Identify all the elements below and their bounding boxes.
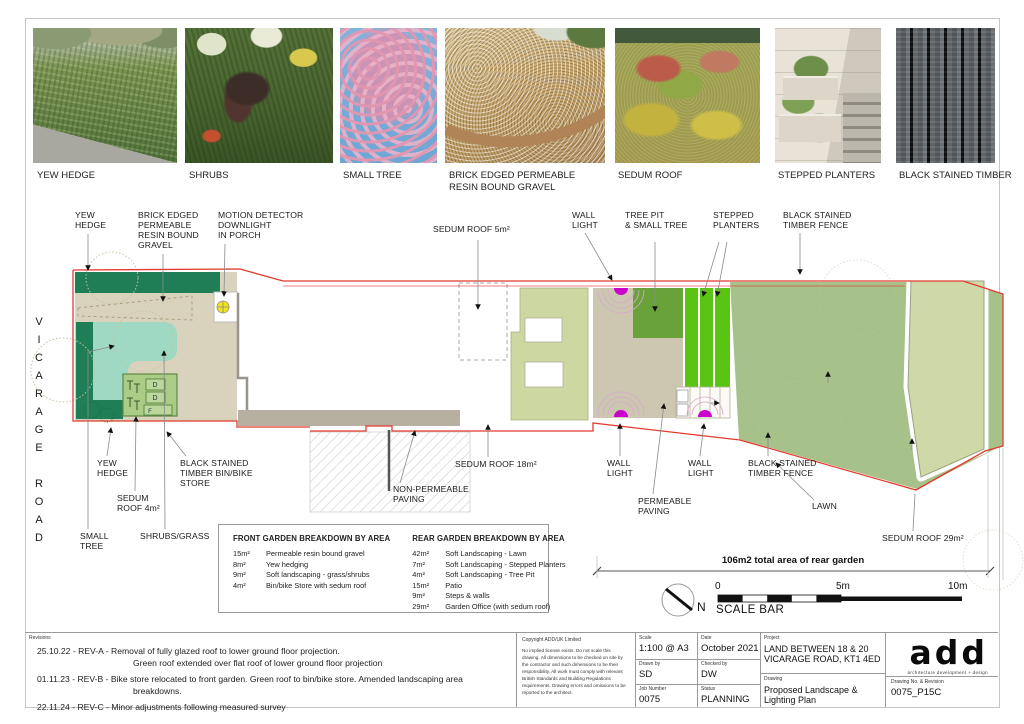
callout-fence-bottom: BLACK STAINED TIMBER FENCE	[748, 458, 816, 478]
photo-gravel	[445, 28, 605, 163]
callout-permeable: PERMEABLE PAVING	[638, 496, 691, 516]
photo-black-timber	[896, 28, 995, 163]
table-row: 15m²Patio	[412, 581, 565, 592]
scale-end: 10m	[948, 581, 967, 592]
table-row: 29m²Garden Office (with sedum roof)	[412, 602, 565, 613]
title-block: Revisions 25.10.22 - REV-A - Removal of …	[25, 632, 998, 707]
revisions-cell: Revisions 25.10.22 - REV-A - Removal of …	[25, 633, 516, 707]
project-cell: Project LAND BETWEEN 18 & 20 VICARAGE RO…	[764, 635, 882, 665]
callout-gravel: BRICK EDGED PERMEABLE RESIN BOUND GRAVEL	[138, 210, 199, 251]
steps	[843, 93, 881, 163]
front-table-title: FRONT GARDEN BREAKDOWN BY AREA	[233, 534, 390, 543]
north-label: N	[697, 600, 706, 614]
checked-by-cell: Checked by DW	[701, 661, 759, 681]
revisions-label: Revisions	[29, 635, 51, 641]
logo-text: add	[908, 637, 988, 668]
photo-stepped-planters	[775, 28, 881, 163]
add-logo: add architecture development + design	[908, 637, 988, 675]
table-row: 9m²Steps & walls	[412, 591, 565, 602]
photo-label: YEW HEDGE	[37, 170, 95, 182]
divider	[635, 659, 760, 660]
callout-non-permeable: NON-PERMEABLE PAVING	[393, 484, 469, 504]
photo-small-tree	[340, 28, 437, 163]
job-number-cell: Job Number 0075	[639, 686, 695, 706]
table-row: 8m²Yew hedging	[233, 560, 390, 571]
photo-label: BRICK EDGED PERMEABLE RESIN BOUND GRAVEL	[449, 170, 575, 194]
rear-garden-table: REAR GARDEN BREAKDOWN BY AREA 42m²Soft L…	[412, 534, 565, 612]
callout-shrubs-grass: SHRUBS/GRASS	[140, 531, 210, 541]
brick-edge-curve	[445, 28, 605, 163]
photo-label: STEPPED PLANTERS	[778, 170, 875, 182]
copyright-title: Copyright ADD/UK Limited	[522, 637, 629, 643]
table-row: 4m²Soft Landscaping - Tree Pit	[412, 570, 565, 581]
scale-cell: Scale 1:100 @ A3	[639, 635, 695, 655]
revision-entry: 01.11.23 - REV-B - Bike store relocated …	[37, 673, 508, 697]
table-row: 7m²Soft Landscaping - Stepped Planters	[412, 560, 565, 571]
rear-table-title: REAR GARDEN BREAKDOWN BY AREA	[412, 534, 565, 543]
table-row: 9m²Soft landscaping - grass/shrubs	[233, 570, 390, 581]
road-label: VICARAGE ROAD	[33, 316, 45, 550]
photo-shrubs	[185, 28, 333, 163]
planter-box	[779, 114, 841, 142]
callout-sedum-roof-4: SEDUM ROOF 4m²	[117, 493, 160, 513]
date-cell: Date October 2021	[701, 635, 759, 655]
callout-sedum-roof-29: SEDUM ROOF 29m²	[882, 533, 964, 543]
revision-entry: 25.10.22 - REV-A - Removal of fully glaz…	[37, 645, 508, 669]
area-breakdown-tables: FRONT GARDEN BREAKDOWN BY AREA 15m²Perme…	[218, 524, 549, 613]
callout-bin-store: BLACK STAINED TIMBER BIN/BIKE STORE	[180, 458, 253, 488]
callout-wall-light-top: WALL LIGHT	[572, 210, 598, 230]
callout-yew-hedge-top: YEW HEDGE	[75, 210, 106, 230]
drawing-cell: Drawing Proposed Landscape & Lighting Pl…	[764, 676, 882, 706]
logo-tagline: architecture development + design	[908, 670, 988, 675]
drawn-by-cell: Drawn by SD	[639, 661, 695, 681]
photo-sedum-roof	[615, 28, 760, 163]
revisions-list: 25.10.22 - REV-A - Removal of fully glaz…	[37, 645, 508, 717]
divider	[885, 676, 998, 677]
scale-mid: 5m	[836, 581, 850, 592]
callout-yew-hedge-bottom: YEW HEDGE	[97, 458, 128, 478]
table-row: 42m²Soft Landscaping - Lawn	[412, 549, 565, 560]
scale-bar-caption: SCALE BAR	[716, 604, 784, 616]
divider	[760, 633, 761, 707]
photo-label: SHRUBS	[189, 170, 229, 182]
front-garden-table: FRONT GARDEN BREAKDOWN BY AREA 15m²Perme…	[233, 534, 390, 612]
table-row: 15m²Permeable resin bound gravel	[233, 549, 390, 560]
divider	[697, 633, 698, 707]
photo-label: BLACK STAINED TIMBER	[899, 170, 1012, 182]
callout-stepped-planters: STEPPED PLANTERS	[713, 210, 759, 230]
copyright-body: No implied license exists. Do not scale …	[522, 647, 629, 696]
callout-fence-top: BLACK STAINED TIMBER FENCE	[783, 210, 851, 230]
scale-zero: 0	[715, 581, 721, 592]
divider	[635, 633, 636, 707]
callout-tree-pit: TREE PIT & SMALL TREE	[625, 210, 687, 230]
callout-sedum-roof-18: SEDUM ROOF 18m²	[455, 459, 537, 469]
status-cell: Status PLANNING	[701, 686, 759, 706]
rear-garden-dimension: 106m2 total area of rear garden	[655, 555, 931, 566]
table-row: 4m²Bin/bike Store with sedum roof	[233, 581, 390, 592]
logo-cell: add architecture development + design	[885, 633, 998, 676]
callout-wall-light-b1: WALL LIGHT	[607, 458, 633, 478]
photo-yew-hedge	[33, 28, 177, 163]
drawing-sheet: YEW HEDGE SHRUBS SMALL TREE BRICK EDGED …	[0, 0, 1024, 724]
callout-lawn: LAWN	[812, 501, 837, 511]
callout-small-tree: SMALL TREE	[80, 531, 109, 551]
drawing-number-cell: Drawing No. & Revision 0075_P15C	[891, 679, 998, 699]
copyright-cell: Copyright ADD/UK Limited No implied lice…	[516, 633, 635, 707]
callout-wall-light-b2: WALL LIGHT	[688, 458, 714, 478]
revision-entry: 22.11.24 - REV-C - Minor adjustments fol…	[37, 701, 508, 713]
photo-label: SMALL TREE	[343, 170, 402, 182]
callout-motion-detector: MOTION DETECTOR DOWNLIGHT IN PORCH	[218, 210, 303, 240]
divider	[760, 673, 885, 674]
planter-box	[783, 76, 838, 100]
divider	[635, 684, 760, 685]
photo-label: SEDUM ROOF	[618, 170, 682, 182]
callout-sedum-roof-5: SEDUM ROOF 5m²	[433, 224, 510, 234]
